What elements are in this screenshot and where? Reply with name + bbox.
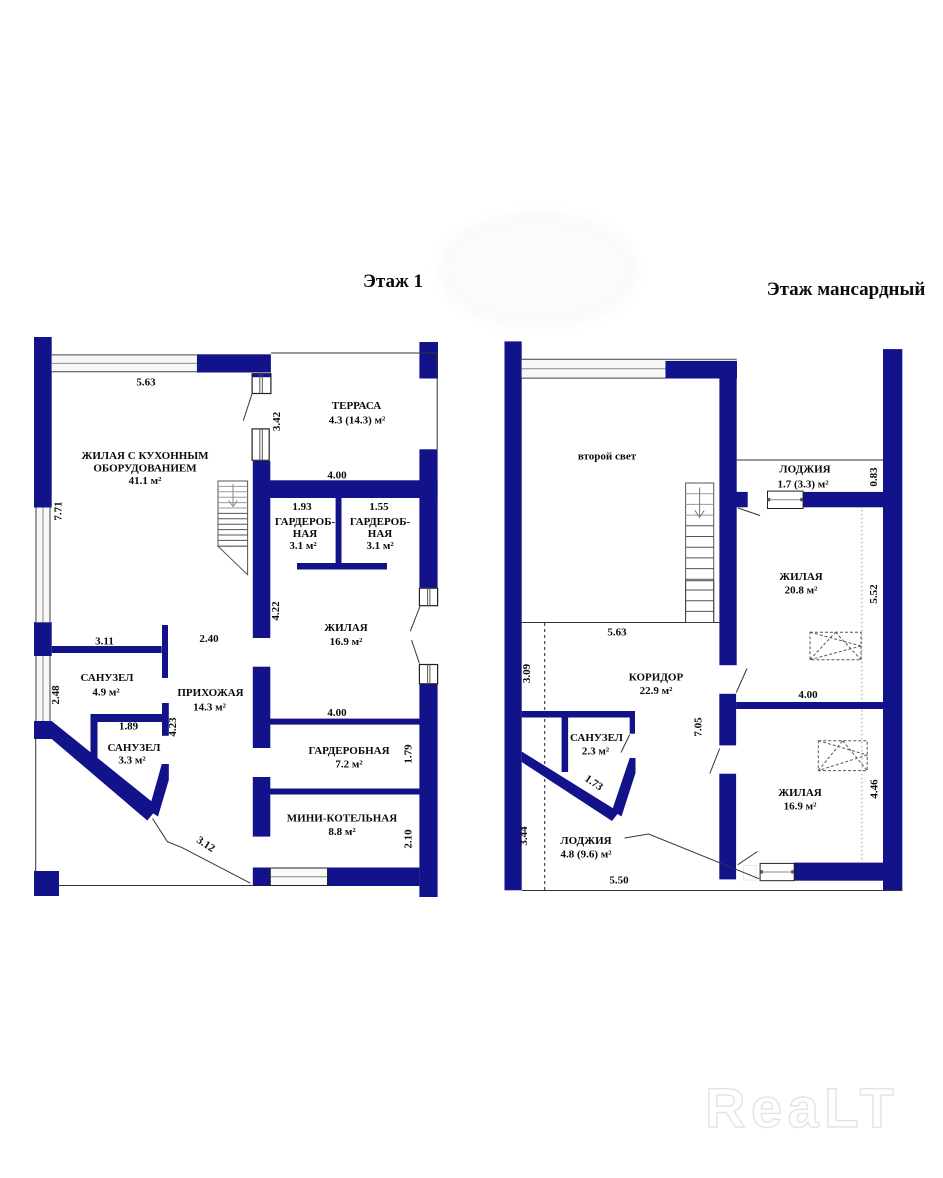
svg-text:4.00: 4.00	[327, 470, 347, 482]
svg-text:ПРИХОЖАЯ: ПРИХОЖАЯ	[177, 687, 243, 699]
svg-text:МИНИ-КОТЕЛЬНАЯ: МИНИ-КОТЕЛЬНАЯ	[287, 813, 397, 825]
svg-text:3.44: 3.44	[518, 826, 530, 846]
svg-text:8.8 м²: 8.8 м²	[328, 826, 356, 838]
svg-text:1.79: 1.79	[403, 744, 415, 764]
svg-text:4.8 (9.6) м²: 4.8 (9.6) м²	[560, 849, 612, 861]
svg-text:второй свет: второй свет	[578, 451, 637, 463]
svg-text:Этаж мансардный: Этаж мансардный	[767, 279, 926, 300]
svg-text:КОРИДОР: КОРИДОР	[629, 672, 684, 684]
svg-text:4.3 (14.3) м²: 4.3 (14.3) м²	[329, 415, 386, 427]
svg-text:7.05: 7.05	[693, 717, 705, 737]
svg-text:ЖИЛАЯ: ЖИЛАЯ	[778, 787, 822, 799]
svg-text:3.3 м²: 3.3 м²	[118, 755, 146, 767]
svg-text:5.52: 5.52	[868, 584, 880, 604]
svg-text:7.2 м²: 7.2 м²	[335, 759, 363, 771]
svg-text:0.83: 0.83	[868, 467, 880, 487]
svg-text:ГАРДЕРОБНАЯ: ГАРДЕРОБНАЯ	[308, 745, 389, 757]
svg-text:16.9 м²: 16.9 м²	[784, 801, 817, 813]
svg-text:16.9 м²: 16.9 м²	[330, 636, 363, 648]
svg-text:САНУЗЕЛ: САНУЗЕЛ	[570, 732, 624, 744]
svg-text:5.63: 5.63	[136, 377, 156, 389]
svg-text:14.3 м²: 14.3 м²	[193, 702, 226, 714]
svg-text:4.9 м²: 4.9 м²	[92, 687, 120, 699]
svg-text:ReaLT: ReaLT	[705, 1076, 900, 1139]
svg-text:1.93: 1.93	[292, 501, 312, 513]
svg-text:ЛОДЖИЯ: ЛОДЖИЯ	[779, 464, 830, 476]
svg-text:4.00: 4.00	[327, 707, 347, 719]
svg-text:3.1 м²: 3.1 м²	[289, 540, 317, 552]
svg-text:4.23: 4.23	[167, 717, 179, 737]
svg-text:1.89: 1.89	[119, 721, 139, 733]
svg-text:НАЯ: НАЯ	[368, 528, 393, 540]
svg-text:1.7 (3.3) м²: 1.7 (3.3) м²	[777, 479, 829, 491]
svg-text:САНУЗЕЛ: САНУЗЕЛ	[80, 672, 134, 684]
svg-text:5.63: 5.63	[607, 627, 627, 639]
svg-text:2.10: 2.10	[403, 829, 415, 849]
svg-text:ТЕРРАСА: ТЕРРАСА	[332, 400, 381, 412]
svg-text:3.42: 3.42	[271, 411, 283, 431]
svg-text:НАЯ: НАЯ	[293, 528, 318, 540]
svg-text:ЖИЛАЯ: ЖИЛАЯ	[324, 622, 368, 634]
svg-text:22.9 м²: 22.9 м²	[640, 685, 673, 697]
svg-text:ЖИЛАЯ С КУХОННЫМ: ЖИЛАЯ С КУХОННЫМ	[81, 450, 209, 462]
svg-text:3.09: 3.09	[521, 663, 533, 683]
svg-text:20.8 м²: 20.8 м²	[785, 585, 818, 597]
svg-text:ГАРДЕРОБ-: ГАРДЕРОБ-	[275, 516, 336, 528]
svg-text:5.50: 5.50	[609, 875, 629, 887]
svg-text:ОБОРУДОВАНИЕМ: ОБОРУДОВАНИЕМ	[93, 463, 197, 475]
svg-text:Этаж 1: Этаж 1	[363, 271, 423, 292]
svg-text:4.00: 4.00	[798, 689, 818, 701]
svg-text:ГАРДЕРОБ-: ГАРДЕРОБ-	[350, 516, 411, 528]
svg-text:3.1 м²: 3.1 м²	[366, 540, 394, 552]
svg-text:ЛОДЖИЯ: ЛОДЖИЯ	[560, 835, 611, 847]
svg-text:4.22: 4.22	[270, 601, 282, 621]
svg-text:41.1 м²: 41.1 м²	[129, 475, 162, 487]
svg-text:2.48: 2.48	[50, 685, 62, 705]
svg-text:2.3 м²: 2.3 м²	[582, 746, 610, 758]
svg-text:2.40: 2.40	[199, 633, 219, 645]
svg-text:4.46: 4.46	[869, 779, 881, 799]
svg-text:ЖИЛАЯ: ЖИЛАЯ	[779, 571, 823, 583]
svg-text:САНУЗЕЛ: САНУЗЕЛ	[107, 742, 161, 754]
svg-text:3.11: 3.11	[95, 636, 114, 648]
svg-text:1.55: 1.55	[369, 501, 389, 513]
svg-text:7.71: 7.71	[53, 501, 65, 520]
